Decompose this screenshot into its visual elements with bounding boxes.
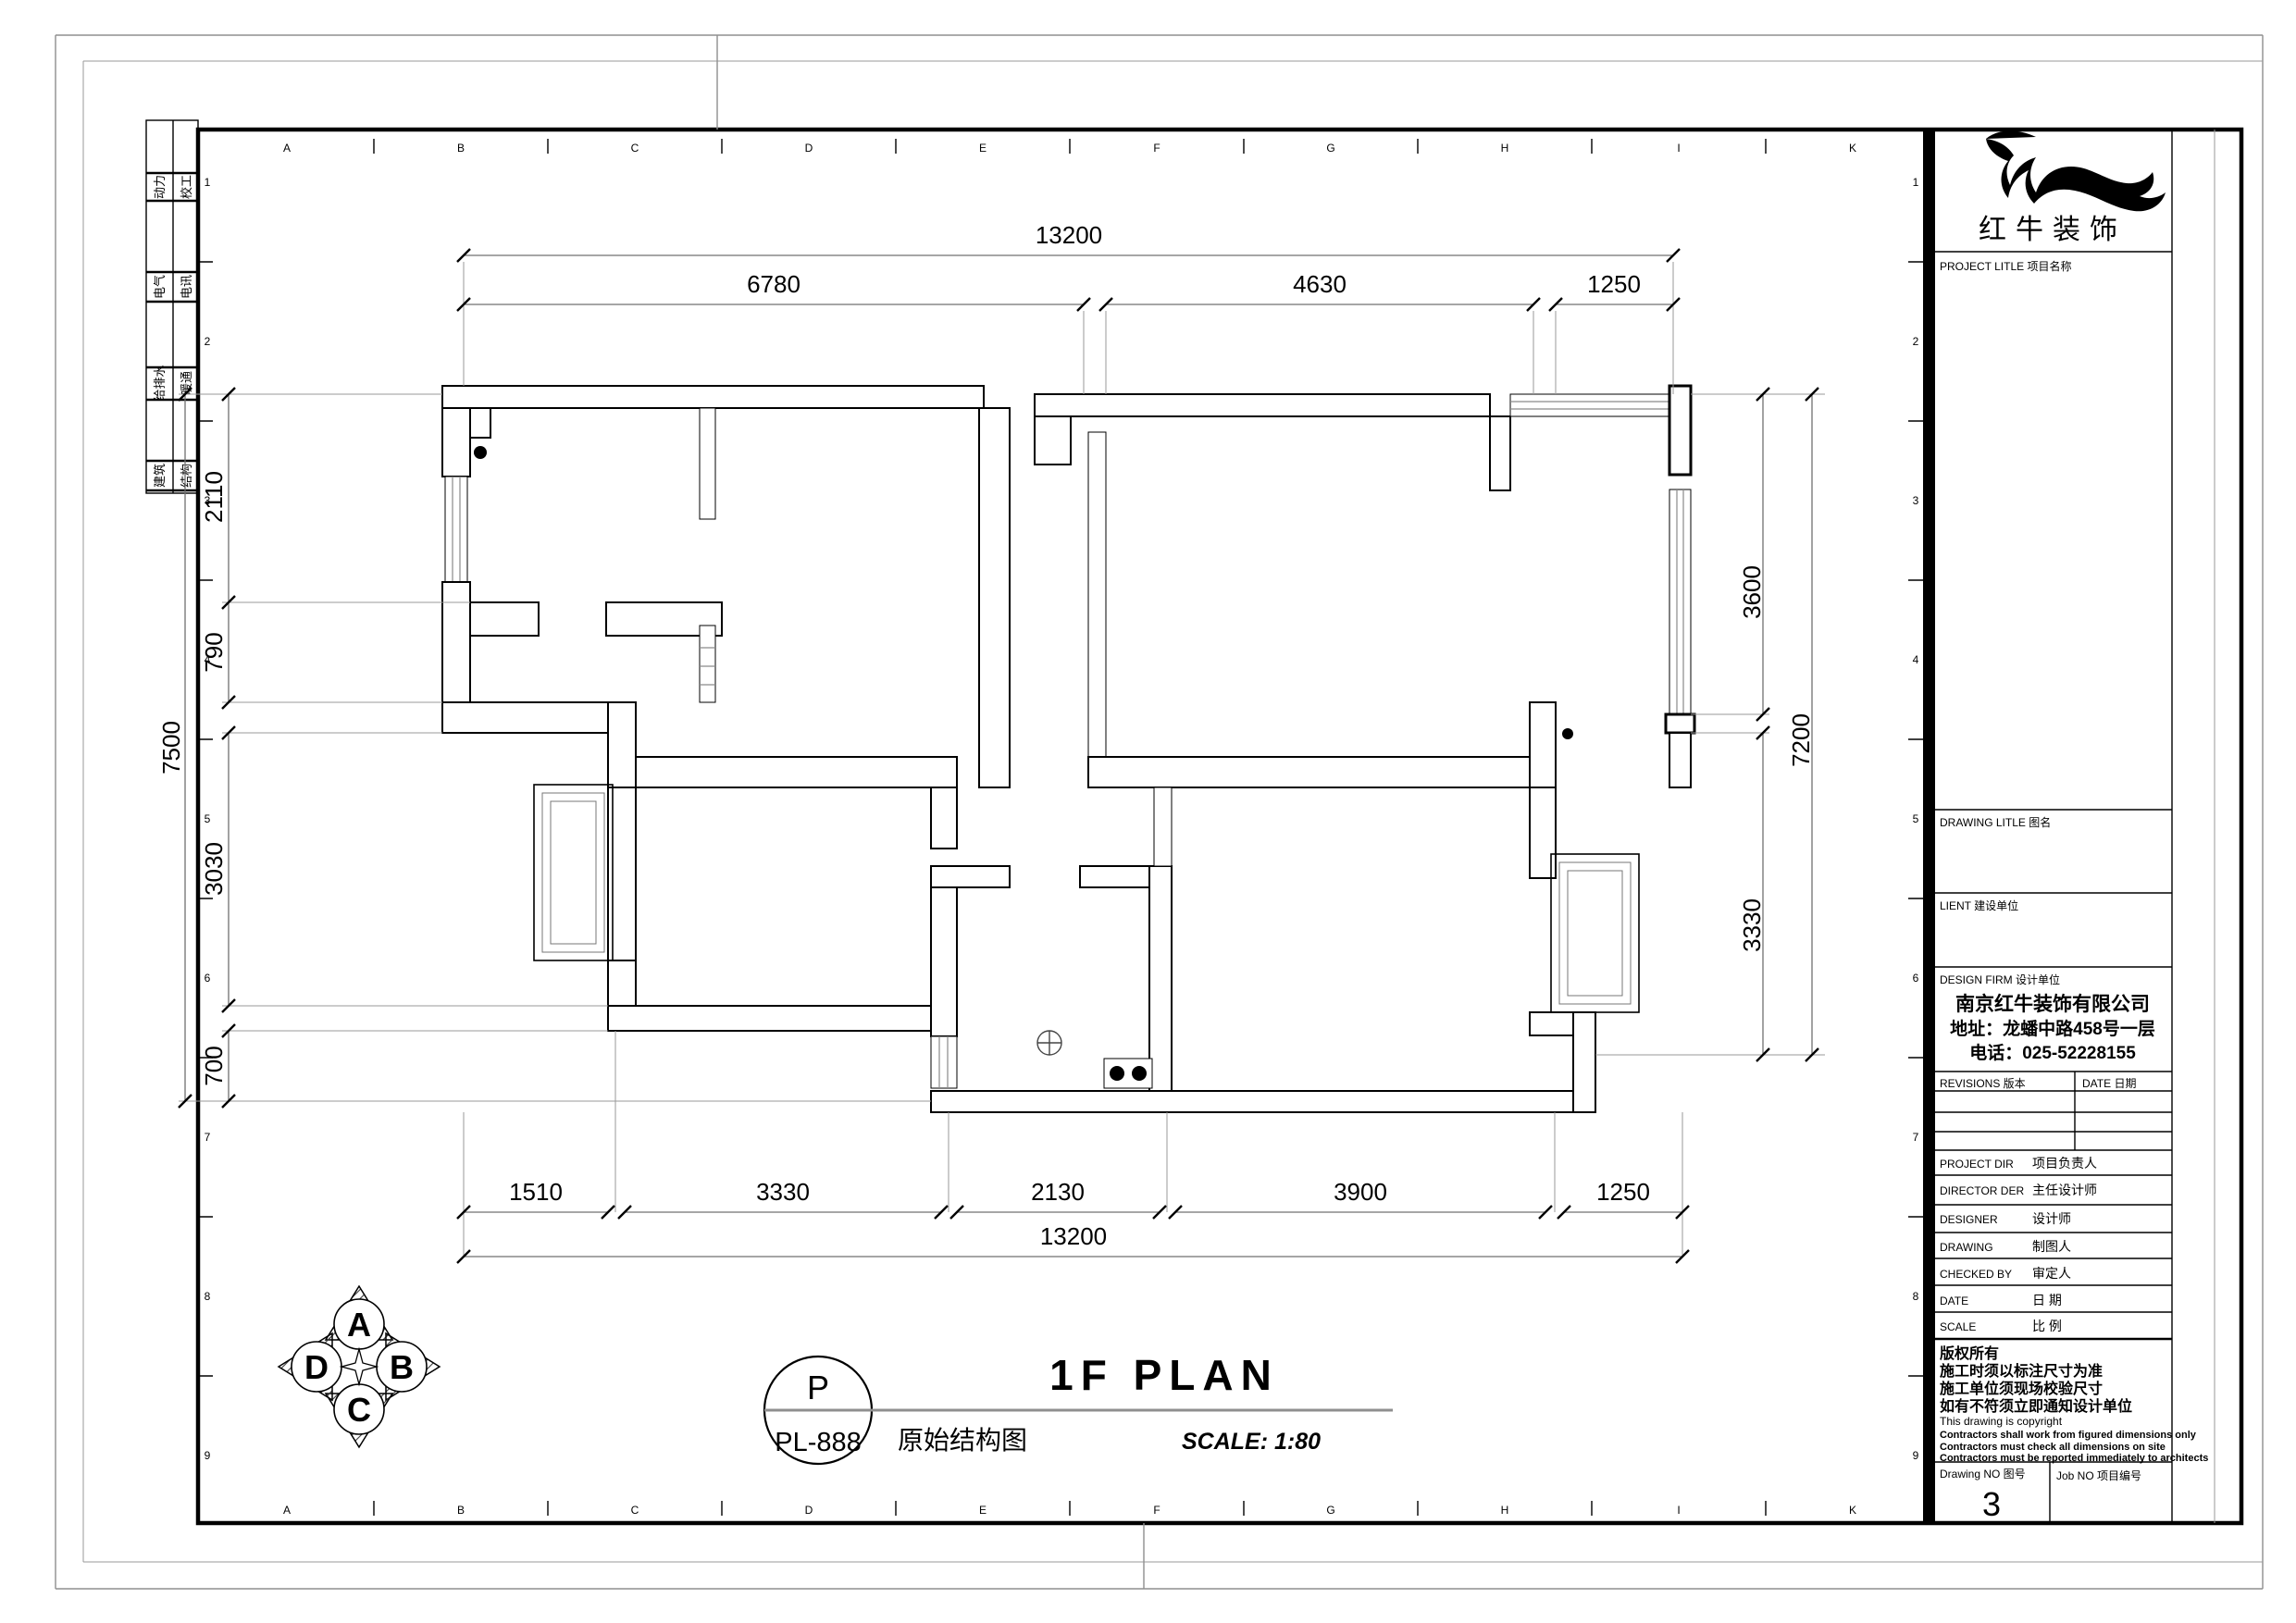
copyright-line: Contractors must be reported immediately… — [1940, 1453, 2208, 1464]
dim-label: 2110 — [200, 471, 228, 523]
row-label-zh: 比 例 — [2032, 1319, 2062, 1333]
firm-phone: 电话：025-52228155 — [1969, 1042, 2136, 1063]
bay-window — [1559, 862, 1631, 1004]
dim-label: 790 — [200, 632, 228, 672]
dim-label: 3330 — [756, 1178, 810, 1206]
grid-row-label: 4 — [1913, 653, 1919, 666]
row-label-zh: 项目负责人 — [2032, 1156, 2097, 1171]
stamp-cell: 校工 — [180, 175, 193, 199]
dim-label: 700 — [200, 1046, 228, 1085]
wall-segment — [1530, 787, 1556, 878]
compass-letter-c: C — [347, 1391, 371, 1429]
compass-letter-b: B — [390, 1348, 414, 1386]
drawing-sheet: A B C D E F G H I K A B C D E F G H I K … — [0, 0, 2296, 1623]
drawing-no-label: Drawing NO 图号 — [1940, 1468, 2026, 1481]
grid-row-label: 6 — [205, 972, 211, 985]
firm-address: 地址：龙蟠中路458号一层 — [1950, 1018, 2155, 1039]
grid-row-label: 1 — [1913, 176, 1919, 189]
grid-row-label: 8 — [1913, 1290, 1919, 1303]
drawing-tag-number: PL-888 — [775, 1428, 862, 1457]
figure-title-text: 1F PLAN — [1049, 1351, 1279, 1399]
partition — [1088, 432, 1106, 757]
drawing-tag-letter: P — [807, 1369, 829, 1406]
grid-col-label: K — [1849, 1504, 1856, 1517]
partition — [1154, 787, 1172, 866]
grid-row-label: 7 — [205, 1131, 211, 1144]
copyright-line: This drawing is copyright — [1940, 1415, 2063, 1428]
wall-segment — [931, 886, 957, 1036]
wall-segment — [636, 757, 957, 787]
grid-row-label: 6 — [1913, 972, 1919, 985]
column-dot — [1562, 728, 1573, 739]
grid-col-label: A — [283, 142, 291, 155]
stamp-cell: 电气 — [153, 275, 167, 299]
row-label-zh: 日 期 — [2032, 1293, 2062, 1307]
revisions-label: REVISIONS 版本 — [1940, 1077, 2026, 1090]
column-grid-labels: A B C D E F G H I K A B C D E F G H I K — [283, 139, 1856, 1517]
dim-label: 3900 — [1334, 1178, 1387, 1206]
floor-plan — [442, 386, 1694, 1112]
bay-window — [534, 785, 613, 960]
dim-label: 3030 — [200, 842, 228, 896]
figure-subtitle: 原始结构图 — [898, 1426, 1027, 1455]
job-no-label: Job NO 项目编号 — [2056, 1468, 2141, 1482]
grid-row-label: 5 — [205, 812, 211, 825]
grid-col-label: B — [457, 142, 465, 155]
grid-row-label: 1 — [205, 176, 211, 189]
copyright-line: 如有不符须立即通知设计单位 — [1940, 1397, 2132, 1415]
grid-col-label: C — [631, 1504, 639, 1517]
row-label-en: DIRECTOR DER — [1940, 1184, 2024, 1197]
wall-segment — [1669, 733, 1691, 787]
bay-window — [542, 793, 604, 952]
row-label-en: PROJECT DIR — [1940, 1158, 2014, 1171]
grid-row-label: 5 — [1913, 812, 1919, 825]
wall-segment — [1088, 757, 1530, 787]
row-label-en: DRAWING — [1940, 1241, 1993, 1254]
wall-segment — [608, 702, 636, 787]
wall-segment — [470, 602, 539, 636]
wall-segment — [608, 1006, 957, 1031]
grid-col-label: F — [1153, 1504, 1160, 1517]
grid-col-label: F — [1153, 142, 1160, 155]
grid-col-label: I — [1677, 142, 1680, 155]
stove-burner — [1110, 1066, 1124, 1081]
grid-row-label: 3 — [1913, 494, 1919, 507]
dim-label: 13200 — [1040, 1222, 1107, 1250]
grid-row-label: 2 — [205, 335, 211, 348]
title-block-divider-bar — [1923, 130, 1935, 1523]
dim-label: 1250 — [1587, 270, 1641, 298]
column-dot — [474, 446, 487, 459]
grid-col-label: C — [631, 142, 639, 155]
grid-row-label: 2 — [1913, 335, 1919, 348]
row-label-en: SCALE — [1940, 1320, 1976, 1333]
dimension-left: 2110 790 3030 700 7500 — [157, 388, 931, 1108]
grid-col-label: I — [1677, 1504, 1680, 1517]
partition — [700, 626, 715, 702]
wall-segment — [1490, 416, 1510, 490]
stamp-cell: 电讯 — [180, 275, 193, 299]
copyright-line: Contractors shall work from figured dime… — [1940, 1430, 2197, 1441]
dim-label: 1510 — [509, 1178, 563, 1206]
row-label-zh: 主任设计师 — [2032, 1183, 2097, 1197]
grid-col-label: G — [1326, 142, 1334, 155]
wall-segment — [931, 1091, 1595, 1112]
dim-label: 4630 — [1293, 270, 1347, 298]
copyright-line: Contractors must check all dimensions on… — [1940, 1442, 2166, 1453]
row-label-en: CHECKED BY — [1940, 1268, 2012, 1281]
grid-col-label: E — [979, 1504, 987, 1517]
dimension-bottom: 1510 3330 2130 3900 1250 13200 — [457, 1031, 1689, 1263]
window — [445, 477, 467, 582]
stamp-cell: 给排水 — [153, 365, 167, 401]
stamp-cell: 动力 — [153, 175, 167, 199]
dim-label: 13200 — [1036, 221, 1102, 249]
wall-segment — [1573, 1012, 1595, 1112]
figure-scale: SCALE: 1:80 — [1182, 1429, 1321, 1455]
compass-letter-d: D — [304, 1348, 329, 1386]
project-title-label: PROJECT LITLE 项目名称 — [1940, 259, 2071, 273]
floor-plan-sheet-svg: A B C D E F G H I K A B C D E F G H I K … — [0, 0, 2296, 1623]
row-label-zh: 设计师 — [2032, 1211, 2071, 1226]
wall-segment — [1035, 394, 1490, 416]
row-grid-labels: 1 2 3 4 5 6 7 8 9 1 2 3 4 5 6 7 8 9 — [198, 176, 1923, 1462]
grid-row-label: 8 — [205, 1290, 211, 1303]
figure-title: P PL-888 1F PLAN 原始结构图 SCALE: 1:80 — [764, 1351, 1393, 1464]
wall-segment — [442, 386, 984, 408]
bay-window — [1551, 854, 1639, 1012]
design-firm-label: DESIGN FIRM 设计单位 — [1940, 973, 2060, 986]
bay-window — [551, 801, 596, 944]
stove-burner — [1132, 1066, 1147, 1081]
wall-segment — [931, 866, 1010, 887]
pillar — [1666, 714, 1694, 733]
copyright-line: 施工单位须现场校验尺寸 — [1940, 1380, 2103, 1397]
dim-label: 2130 — [1031, 1178, 1085, 1206]
grid-col-label: E — [979, 142, 987, 155]
partition — [700, 408, 715, 519]
firm-name: 南京红牛装饰有限公司 — [1955, 993, 2150, 1015]
grid-row-label: 7 — [1913, 1131, 1919, 1144]
grid-col-label: D — [805, 1504, 813, 1517]
grid-col-label: D — [805, 142, 813, 155]
discipline-stamp-table: 动力 校工 电气 电讯 给排水 暖通 建筑 结构 — [146, 120, 198, 493]
grid-col-label: A — [283, 1504, 291, 1517]
row-label-zh: 制图人 — [2032, 1239, 2071, 1254]
stamp-cell: 建筑 — [153, 464, 167, 488]
wall-segment — [1530, 702, 1556, 787]
wall-segment — [470, 408, 490, 438]
wall-segment — [1149, 866, 1172, 1091]
row-label-en: DESIGNER — [1940, 1213, 1998, 1226]
grid-col-label: H — [1501, 1504, 1509, 1517]
dim-label: 1250 — [1596, 1178, 1650, 1206]
dim-label: 7200 — [1787, 713, 1815, 767]
grid-row-label: 9 — [205, 1449, 211, 1462]
dim-label: 7500 — [157, 721, 185, 774]
copyright-line: 版权所有 — [1939, 1344, 1999, 1362]
pillar — [1669, 386, 1691, 475]
compass-letter-a: A — [347, 1306, 371, 1344]
drawing-no-value: 3 — [1982, 1485, 2001, 1523]
wall-segment — [1035, 416, 1071, 465]
compass-rose: A B C D — [279, 1286, 440, 1447]
row-label-en: DATE — [1940, 1295, 1968, 1307]
dimension-top: 13200 6780 4630 1250 — [457, 221, 1680, 394]
dim-label: 6780 — [747, 270, 800, 298]
window — [1669, 489, 1691, 714]
grid-col-label: G — [1326, 1504, 1334, 1517]
grid-col-label: H — [1501, 142, 1509, 155]
dim-label: 3600 — [1738, 565, 1766, 619]
date-col-label: DATE 日期 — [2082, 1077, 2136, 1090]
wall-segment — [442, 702, 636, 733]
client-label: LIENT 建设单位 — [1940, 898, 2018, 912]
wall-segment — [979, 408, 1010, 787]
window — [1510, 394, 1669, 416]
wall-segment — [931, 787, 957, 849]
bay-window — [1568, 871, 1622, 996]
grid-col-label: K — [1849, 142, 1856, 155]
copyright-line: 施工时须以标注尺寸为准 — [1940, 1362, 2103, 1380]
row-label-zh: 审定人 — [2032, 1266, 2071, 1281]
dim-label: 3330 — [1738, 898, 1766, 952]
rednest-logo-icon — [1986, 130, 2166, 211]
title-block: 红牛装饰 PROJECT LITLE 项目名称 DRAWING LITLE 图名… — [1934, 130, 2208, 1523]
grid-col-label: B — [457, 1504, 465, 1517]
window — [931, 1036, 957, 1088]
stamp-cell: 结构 — [180, 464, 193, 488]
wall-segment — [442, 408, 470, 477]
drawing-title-label: DRAWING LITLE 图名 — [1940, 815, 2051, 829]
grid-row-label: 9 — [1913, 1449, 1919, 1462]
compass-star — [341, 1349, 377, 1384]
dimension-right: 3600 3330 7200 — [1595, 388, 1825, 1061]
logo-text: 红牛装饰 — [1979, 215, 2127, 245]
